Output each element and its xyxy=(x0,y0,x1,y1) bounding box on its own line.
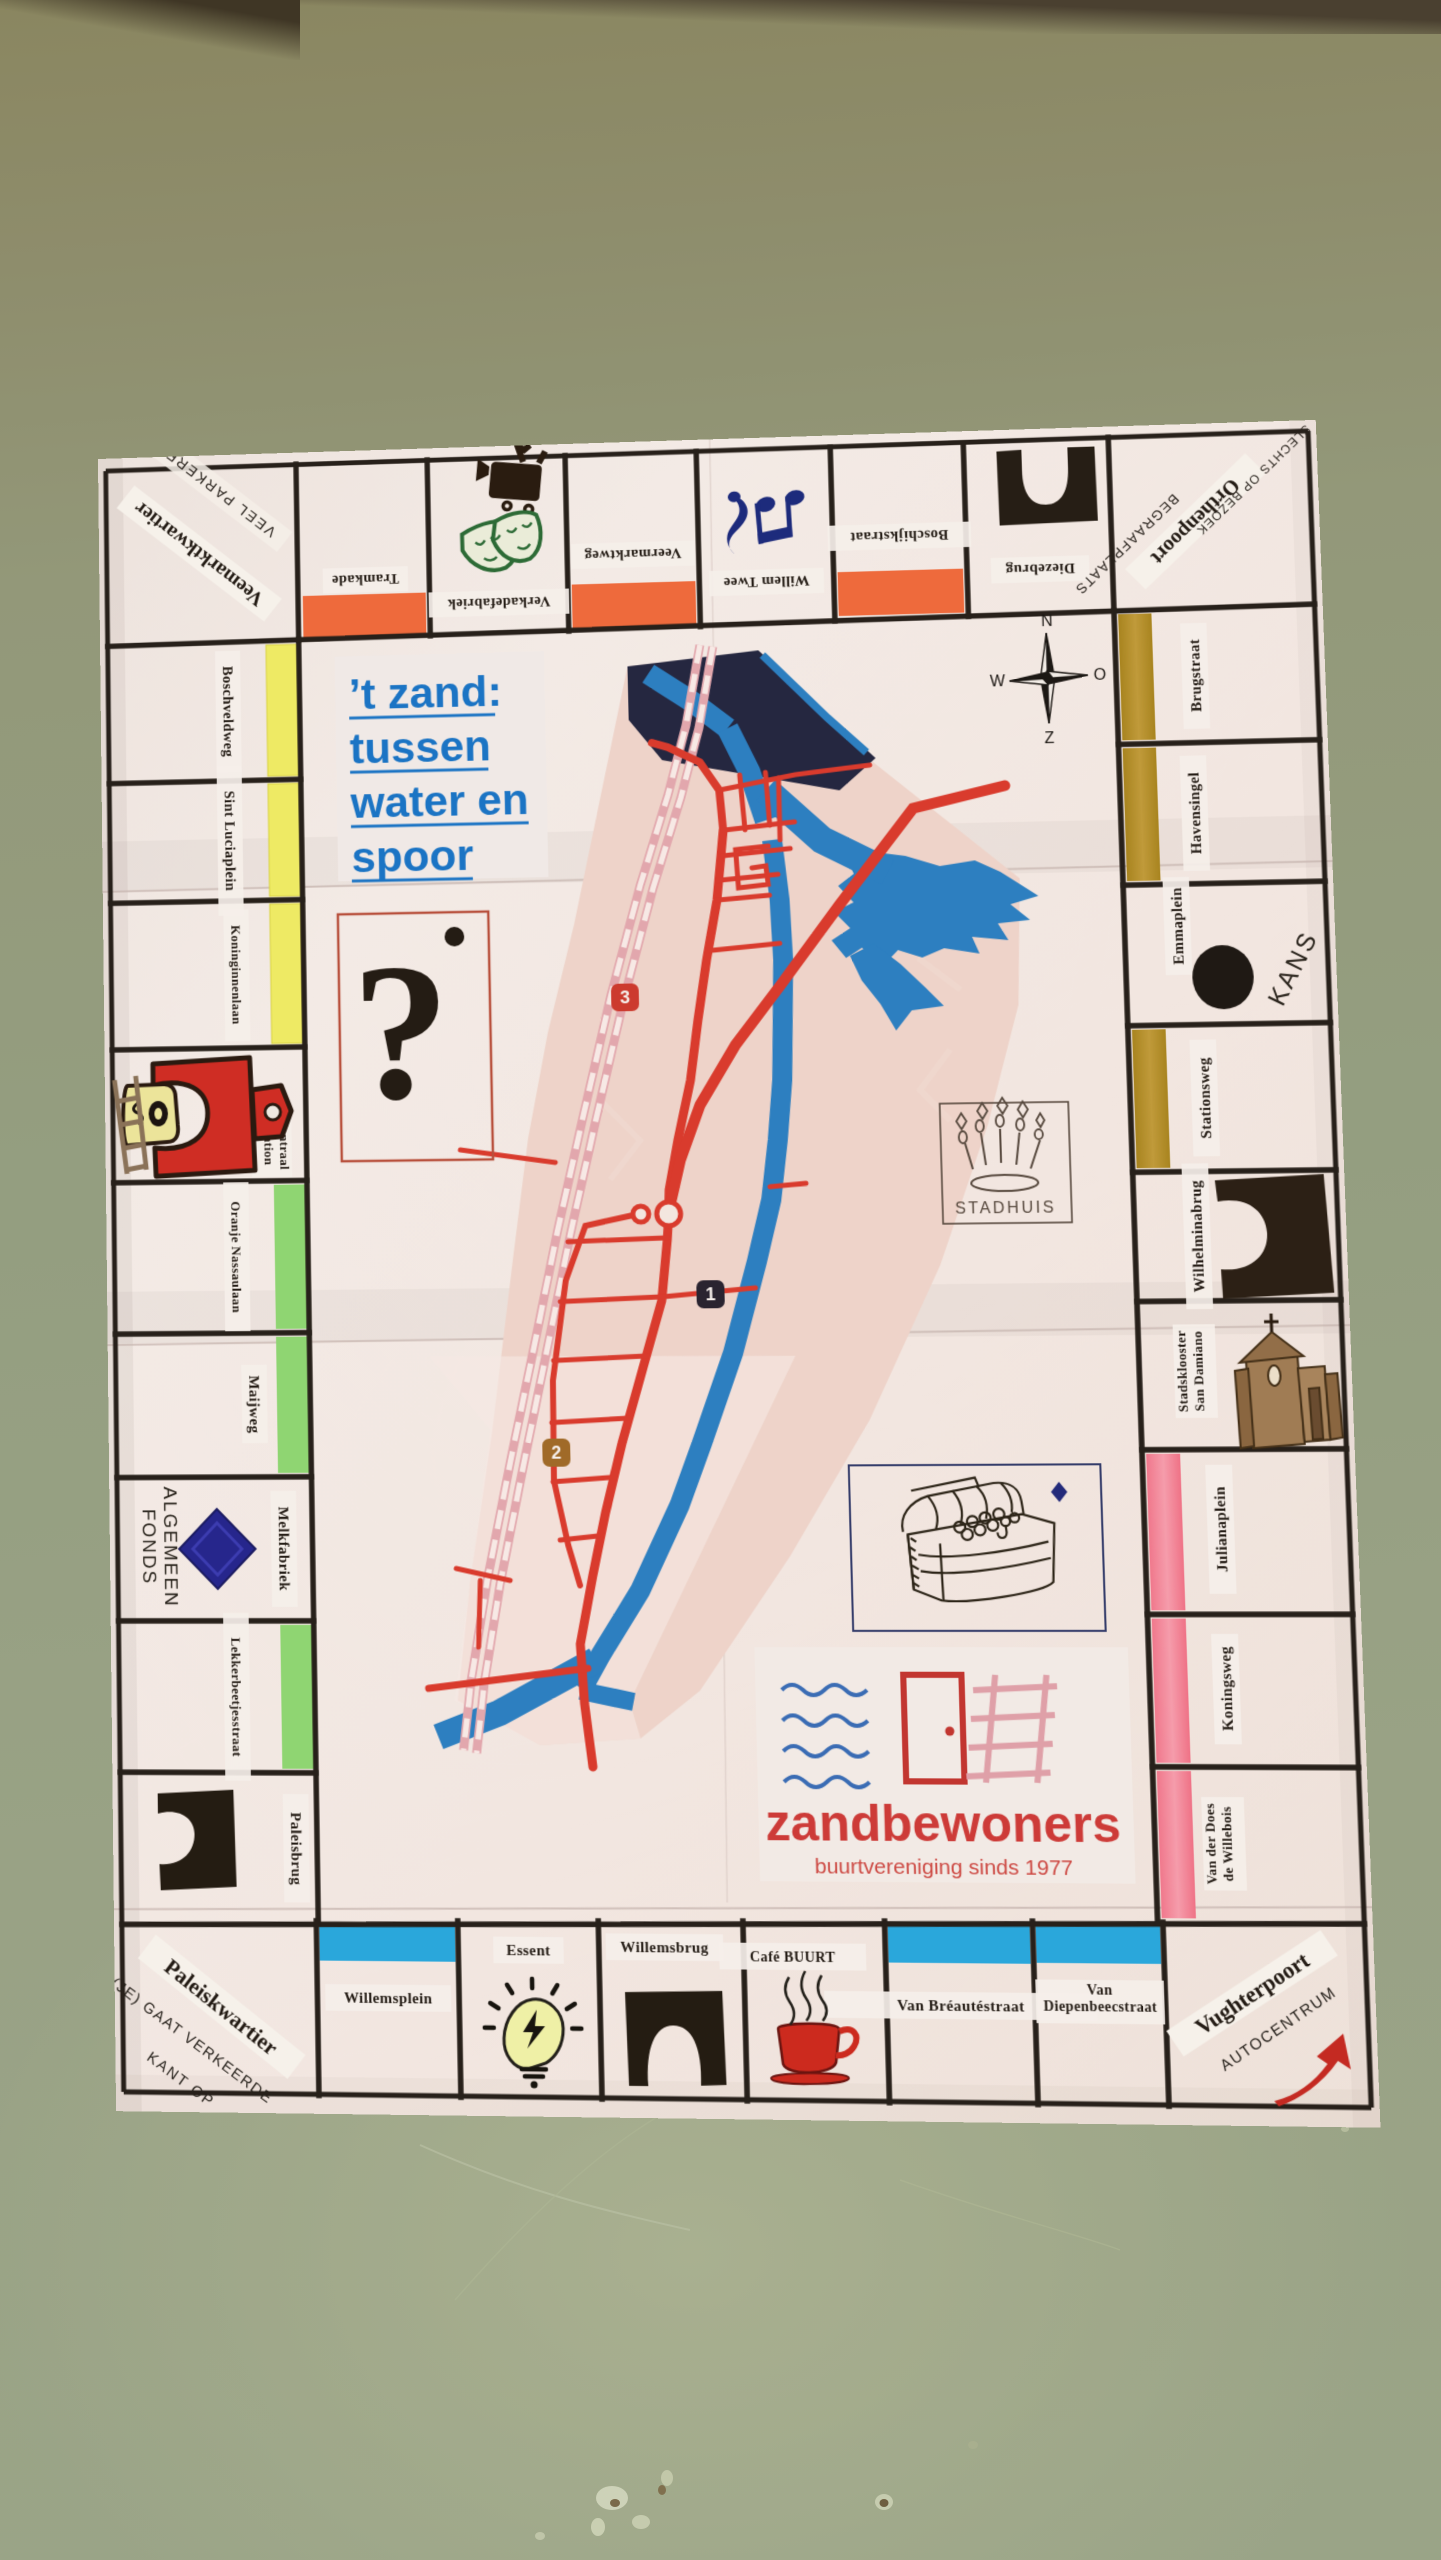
svg-text:STADHUIS: STADHUIS xyxy=(955,1199,1057,1218)
svg-text:Willemsbrug: Willemsbrug xyxy=(620,1939,709,1957)
svg-text:Van: Van xyxy=(1087,1981,1114,1998)
svg-text:Verkadefabriek: Verkadefabriek xyxy=(447,593,550,612)
svg-text:Melkfabriek: Melkfabriek xyxy=(274,1507,292,1591)
svg-text:FONDS: FONDS xyxy=(138,1509,160,1585)
svg-text:2: 2 xyxy=(551,1443,561,1463)
svg-text:1: 1 xyxy=(705,1284,716,1304)
svg-text:Paleisbrug: Paleisbrug xyxy=(287,1812,305,1885)
svg-text:Diepenbeecstraat: Diepenbeecstraat xyxy=(1043,1997,1158,2015)
svg-text:Koninginnenlaan: Koninginnenlaan xyxy=(228,925,244,1025)
svg-text:Café BUURT: Café BUURT xyxy=(750,1948,836,1965)
svg-text:tussen: tussen xyxy=(349,721,491,773)
svg-text:Willem Twee: Willem Twee xyxy=(723,572,810,591)
svg-text:Boschijkstraat: Boschijkstraat xyxy=(850,526,949,545)
svg-text:’t zand:: ’t zand: xyxy=(348,667,502,719)
svg-text:Willemsplein: Willemsplein xyxy=(344,1990,433,2008)
svg-text:ALGEMEEN: ALGEMEEN xyxy=(160,1487,182,1608)
svg-text:spoor: spoor xyxy=(351,831,474,882)
svg-text:Julianaplein: Julianaplein xyxy=(1211,1486,1232,1572)
svg-text:Van Bréautéstraat: Van Bréautéstraat xyxy=(897,1997,1025,2016)
svg-text:Van der Does: Van der Does xyxy=(1202,1803,1220,1885)
svg-text:Stadsklooster: Stadsklooster xyxy=(1173,1330,1191,1412)
svg-text:Koningsweg: Koningsweg xyxy=(1217,1646,1238,1731)
svg-text:Brugstraat: Brugstraat xyxy=(1186,639,1206,712)
svg-text:Stationsweg: Stationsweg xyxy=(1195,1057,1215,1139)
svg-text:Z: Z xyxy=(1044,729,1054,747)
svg-text:Diezebrug: Diezebrug xyxy=(1005,559,1075,578)
svg-text:Lekkerbeetjesstraat: Lekkerbeetjesstraat xyxy=(228,1638,244,1758)
svg-text:Havensingel: Havensingel xyxy=(1186,772,1206,854)
svg-text:San Damiano: San Damiano xyxy=(1190,1331,1208,1412)
svg-text:Sint Luciaplein: Sint Luciaplein xyxy=(221,790,239,891)
svg-text:?: ? xyxy=(351,922,453,1141)
svg-text:Tramkade: Tramkade xyxy=(332,570,399,588)
svg-text:O: O xyxy=(1093,666,1106,684)
svg-text:Oranje Nassaulaan: Oranje Nassaulaan xyxy=(228,1201,244,1313)
svg-text:3: 3 xyxy=(620,988,630,1008)
svg-text:buurtvereniging sinds 1977: buurtvereniging sinds 1977 xyxy=(814,1855,1073,1881)
svg-text:W: W xyxy=(990,673,1006,691)
svg-text:Boschveldweg: Boschveldweg xyxy=(219,666,237,758)
svg-text:Maijweg: Maijweg xyxy=(245,1375,262,1433)
svg-text:water en: water en xyxy=(349,775,529,827)
svg-text:Emmaplein: Emmaplein xyxy=(1168,887,1188,965)
svg-text:zandbewoners: zandbewoners xyxy=(764,1795,1121,1855)
svg-text:de Willebois: de Willebois xyxy=(1218,1806,1236,1881)
svg-text:Essent: Essent xyxy=(506,1942,551,1960)
svg-text:Veermarktweg: Veermarktweg xyxy=(584,544,682,563)
svg-text:N: N xyxy=(1041,612,1053,630)
